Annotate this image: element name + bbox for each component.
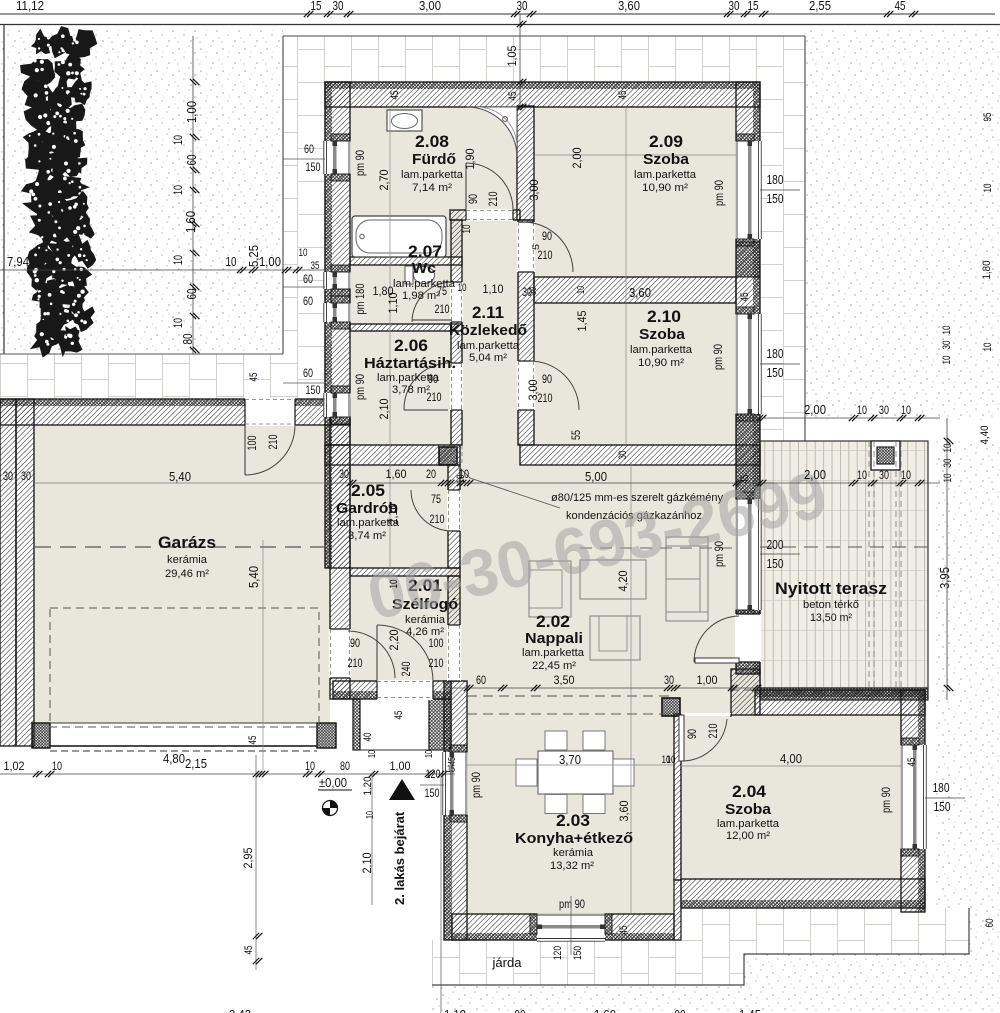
svg-text:45: 45 (389, 91, 401, 100)
svg-text:150: 150 (767, 365, 784, 380)
svg-text:10,90 m²: 10,90 m² (638, 357, 684, 369)
svg-text:2.08: 2.08 (415, 132, 449, 151)
svg-text:180: 180 (933, 780, 950, 795)
svg-text:60: 60 (184, 289, 199, 300)
svg-text:10: 10 (941, 356, 953, 365)
svg-text:45: 45 (906, 758, 918, 767)
svg-text:3,00: 3,00 (527, 179, 541, 200)
svg-text:10: 10 (365, 811, 376, 819)
svg-text:210: 210 (435, 302, 450, 316)
svg-text:kerámia: kerámia (553, 847, 594, 859)
svg-text:150: 150 (767, 191, 784, 206)
svg-text:1,45: 1,45 (575, 310, 589, 331)
svg-text:4,00: 4,00 (780, 751, 802, 766)
svg-text:2,10: 2,10 (386, 503, 400, 524)
svg-text:10: 10 (458, 282, 467, 294)
svg-text:210: 210 (348, 656, 363, 670)
svg-text:3,00: 3,00 (419, 0, 441, 13)
svg-text:3,78 m²: 3,78 m² (392, 384, 430, 396)
svg-text:10,90 m²: 10,90 m² (642, 182, 688, 194)
svg-text:55: 55 (569, 430, 583, 440)
svg-text:5,00: 5,00 (585, 469, 607, 484)
svg-text:10: 10 (576, 286, 587, 294)
svg-text:Szoba: Szoba (643, 151, 690, 168)
svg-text:30: 30 (729, 0, 740, 13)
svg-text:210: 210 (266, 434, 280, 449)
svg-text:150: 150 (572, 946, 584, 960)
svg-text:60: 60 (303, 294, 313, 308)
svg-text:2,55: 2,55 (809, 0, 831, 13)
svg-text:1,98 m²: 1,98 m² (402, 290, 440, 302)
svg-text:2.02: 2.02 (536, 612, 570, 631)
svg-text:45: 45 (895, 0, 906, 13)
svg-text:75: 75 (431, 492, 441, 506)
svg-text:45: 45 (507, 92, 519, 101)
svg-text:2,70: 2,70 (377, 169, 391, 190)
svg-text:3,74 m²: 3,74 m² (348, 530, 386, 542)
svg-text:pm 90: pm 90 (879, 787, 893, 813)
svg-text:10: 10 (857, 403, 867, 417)
svg-text:2.04: 2.04 (732, 782, 767, 801)
svg-text:4,80: 4,80 (163, 751, 185, 766)
svg-text:10: 10 (171, 135, 185, 145)
svg-text:±0,00: ±0,00 (319, 775, 347, 790)
svg-text:pm 90: pm 90 (712, 541, 726, 567)
svg-text:10: 10 (942, 474, 954, 483)
svg-text:3,95: 3,95 (937, 567, 952, 589)
svg-text:10: 10 (942, 444, 954, 453)
svg-text:10: 10 (367, 750, 378, 758)
svg-text:3,60: 3,60 (629, 285, 651, 300)
svg-text:Garázs: Garázs (158, 533, 216, 552)
svg-text:1,10: 1,10 (483, 282, 504, 296)
svg-text:90: 90 (466, 194, 480, 204)
svg-text:45: 45 (248, 373, 260, 382)
svg-text:150: 150 (425, 786, 440, 800)
svg-text:95: 95 (982, 113, 994, 122)
svg-text:30: 30 (942, 459, 954, 468)
svg-text:1,05: 1,05 (505, 45, 519, 66)
svg-text:1,10: 1,10 (386, 292, 400, 313)
svg-text:2.05: 2.05 (351, 481, 385, 500)
svg-text:2.11: 2.11 (472, 303, 504, 322)
svg-text:5,40: 5,40 (169, 469, 191, 484)
svg-text:pm 90: pm 90 (712, 180, 726, 206)
svg-text:lam.parketta: lam.parketta (630, 344, 693, 356)
svg-text:120: 120 (426, 767, 441, 781)
svg-text:210: 210 (429, 656, 444, 670)
svg-text:3,60: 3,60 (617, 800, 631, 821)
svg-text:2.10: 2.10 (647, 307, 681, 326)
svg-text:Konyha+étkező: Konyha+étkező (515, 830, 633, 847)
svg-text:200: 200 (767, 537, 784, 552)
svg-text:7,94: 7,94 (7, 254, 29, 269)
svg-text:30: 30 (21, 469, 31, 483)
svg-text:10: 10 (461, 225, 473, 234)
svg-text:10: 10 (667, 754, 676, 766)
svg-text:60: 60 (303, 366, 313, 380)
svg-text:30: 30 (879, 468, 889, 482)
svg-text:2,15: 2,15 (185, 756, 207, 771)
svg-text:lam.parketta: lam.parketta (717, 818, 780, 830)
svg-text:210: 210 (430, 512, 445, 526)
svg-text:pm 90: pm 90 (469, 772, 483, 798)
svg-text:60: 60 (984, 919, 996, 928)
svg-text:30: 30 (879, 403, 889, 417)
svg-text:30: 30 (517, 0, 528, 13)
svg-text:1,90: 1,90 (463, 148, 477, 169)
svg-text:3,50: 3,50 (554, 673, 575, 687)
svg-text:10: 10 (857, 468, 867, 482)
svg-text:45: 45 (243, 946, 255, 955)
svg-text:pm 90: pm 90 (353, 150, 367, 176)
svg-text:15: 15 (748, 0, 759, 13)
svg-text:lam.parketta: lam.parketta (457, 340, 520, 352)
svg-text:80: 80 (340, 759, 350, 773)
svg-text:10: 10 (299, 247, 308, 259)
svg-text:90: 90 (542, 229, 552, 243)
svg-text:Wc: Wc (412, 260, 436, 277)
svg-text:30: 30 (941, 341, 953, 350)
svg-text:15: 15 (311, 0, 322, 13)
svg-text:1,00: 1,00 (697, 673, 718, 687)
svg-text:120: 120 (552, 946, 564, 960)
svg-text:2.06: 2.06 (394, 336, 428, 355)
svg-text:2. lakás bejárat: 2. lakás bejárat (392, 811, 407, 905)
svg-text:100: 100 (245, 435, 259, 450)
svg-text:Nyitott terasz: Nyitott terasz (775, 579, 887, 598)
svg-text:1,80: 1,80 (981, 261, 993, 280)
svg-text:2,00: 2,00 (804, 402, 826, 417)
svg-text:90: 90 (542, 372, 552, 386)
svg-text:150: 150 (306, 383, 321, 397)
svg-text:10: 10 (941, 326, 953, 335)
svg-text:7,14 m²: 7,14 m² (412, 182, 452, 194)
svg-text:2.07: 2.07 (408, 242, 442, 261)
svg-text:Szoba: Szoba (725, 801, 772, 818)
svg-text:35: 35 (311, 260, 320, 272)
svg-text:12,00 m²: 12,00 m² (726, 830, 770, 842)
svg-text:210: 210 (538, 391, 553, 405)
svg-text:10: 10 (171, 185, 185, 195)
svg-text:pm 90: pm 90 (353, 374, 367, 400)
svg-text:pm 90: pm 90 (711, 344, 725, 370)
svg-text:30: 30 (617, 451, 629, 460)
svg-text:100: 100 (429, 636, 444, 650)
svg-text:45: 45 (618, 926, 630, 935)
svg-text:10: 10 (171, 255, 185, 265)
svg-text:13,32 m²: 13,32 m² (550, 860, 594, 872)
svg-text:lam.parketta: lam.parketta (634, 169, 697, 181)
svg-text:80: 80 (180, 334, 195, 345)
svg-text:150: 150 (306, 160, 321, 174)
svg-text:Fürdő: Fürdő (412, 151, 456, 168)
svg-text:45: 45 (393, 711, 405, 720)
svg-text:5,04 m²: 5,04 m² (469, 352, 507, 364)
svg-text:90: 90 (515, 1007, 526, 1013)
svg-text:10: 10 (982, 343, 994, 352)
svg-text:11,12: 11,12 (16, 0, 44, 13)
svg-text:1,02: 1,02 (4, 759, 25, 773)
svg-text:60: 60 (303, 272, 313, 286)
svg-text:5: 5 (531, 244, 541, 250)
svg-text:15: 15 (447, 764, 455, 775)
svg-text:30: 30 (339, 467, 349, 481)
svg-text:13,50 m²: 13,50 m² (810, 612, 852, 624)
svg-text:3,43: 3,43 (229, 1007, 251, 1013)
svg-text:45: 45 (617, 91, 629, 100)
svg-text:90: 90 (350, 636, 360, 650)
svg-text:210: 210 (486, 191, 500, 206)
svg-text:210: 210 (427, 390, 442, 404)
svg-text:1,00: 1,00 (390, 759, 411, 773)
svg-text:60: 60 (184, 155, 199, 166)
svg-text:150: 150 (934, 799, 951, 814)
svg-text:beton térkő: beton térkő (803, 599, 859, 611)
svg-text:180: 180 (767, 346, 784, 361)
svg-text:1,60: 1,60 (183, 211, 198, 233)
svg-text:75: 75 (437, 284, 447, 298)
svg-text:150: 150 (767, 556, 784, 571)
svg-text:60: 60 (476, 673, 486, 687)
svg-text:5,40: 5,40 (246, 566, 261, 588)
svg-text:29,46 m²: 29,46 m² (165, 568, 209, 580)
svg-text:2.09: 2.09 (649, 132, 683, 151)
svg-text:3,70: 3,70 (559, 752, 581, 767)
svg-text:Szoba: Szoba (639, 326, 686, 343)
svg-text:2,95: 2,95 (241, 847, 255, 868)
svg-text:1,45: 1,45 (739, 1007, 761, 1013)
svg-text:1,60: 1,60 (386, 467, 407, 481)
svg-text:45: 45 (247, 736, 259, 745)
svg-text:lam.parketta: lam.parketta (522, 647, 585, 659)
svg-text:10: 10 (459, 467, 469, 481)
svg-text:240: 240 (399, 661, 413, 676)
svg-text:1,00: 1,00 (184, 101, 199, 123)
svg-text:2.03: 2.03 (556, 811, 590, 830)
svg-text:1,19: 1,19 (444, 1007, 466, 1013)
svg-text:pm 180: pm 180 (353, 283, 367, 314)
svg-text:3,60: 3,60 (618, 0, 640, 13)
svg-text:4,40: 4,40 (979, 426, 991, 445)
svg-text:20: 20 (426, 467, 436, 481)
svg-text:járda: járda (492, 955, 523, 970)
svg-text:kerámia: kerámia (167, 554, 208, 566)
svg-text:1,00: 1,00 (259, 254, 281, 269)
svg-text:10: 10 (226, 254, 237, 269)
svg-text:2,10: 2,10 (377, 398, 391, 419)
svg-text:10: 10 (171, 318, 185, 328)
svg-text:lam.parketta: lam.parketta (401, 169, 464, 181)
svg-text:40: 40 (362, 733, 374, 742)
svg-text:2,00: 2,00 (804, 467, 826, 482)
svg-text:30: 30 (3, 469, 13, 483)
svg-text:1,60: 1,60 (594, 1007, 616, 1013)
svg-text:pm 90: pm 90 (559, 897, 585, 911)
svg-text:Háztartásih.: Háztartásih. (364, 355, 456, 372)
svg-text:2,00: 2,00 (570, 147, 584, 168)
svg-text:30: 30 (333, 0, 344, 13)
svg-text:2,20: 2,20 (387, 629, 401, 650)
svg-text:10: 10 (424, 750, 435, 758)
svg-text:180: 180 (767, 172, 784, 187)
svg-text:22,45 m²: 22,45 m² (532, 660, 576, 672)
svg-text:10: 10 (388, 580, 400, 589)
svg-text:90: 90 (685, 729, 699, 739)
svg-text:90: 90 (675, 1007, 686, 1013)
svg-text:210: 210 (706, 723, 720, 738)
svg-text:30: 30 (522, 285, 532, 299)
svg-text:Közlekedő: Közlekedő (449, 322, 527, 339)
svg-text:60: 60 (304, 142, 314, 156)
svg-text:10: 10 (305, 759, 315, 773)
svg-text:10: 10 (982, 184, 994, 193)
svg-text:Nappali: Nappali (525, 630, 583, 647)
svg-text:90: 90 (428, 372, 438, 386)
svg-text:45: 45 (739, 293, 751, 302)
svg-text:4,20: 4,20 (616, 570, 630, 591)
